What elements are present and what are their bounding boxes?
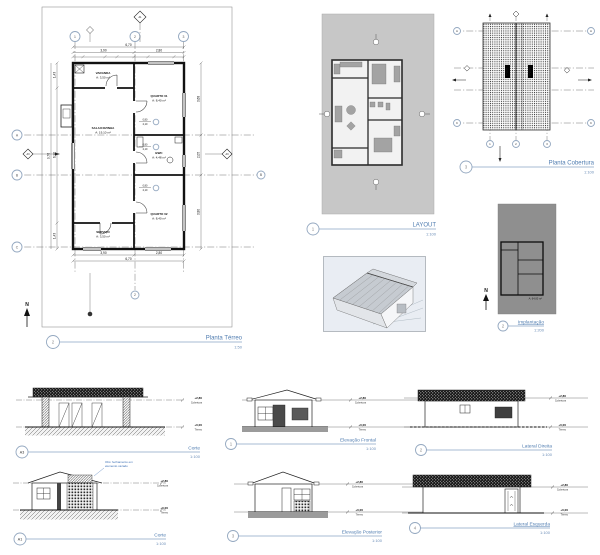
svg-text:SALA/COZINHA: SALA/COZINHA <box>92 126 115 130</box>
svg-text:C: C <box>456 122 458 125</box>
room-labels: VARANDAA: 3,50 m² QUARTO 01A: 8,40 m² SA… <box>92 71 168 239</box>
fixtures <box>61 65 182 163</box>
svg-text:Térreo: Térreo <box>195 428 203 431</box>
roof <box>250 472 317 484</box>
svg-text:Térreo: Térreo <box>359 428 367 431</box>
view-lateral-esquerda: +2,80 Cobertura +0,00 Térreo 4 Lateral E… <box>402 458 600 546</box>
svg-text:+2,80: +2,80 <box>194 396 202 400</box>
svg-text:Lateral Direita: Lateral Direita <box>522 444 552 450</box>
dimensions: 6,70 3,90 2,80 3,90 2,80 6,70 1,43 6,90 … <box>47 43 203 263</box>
svg-text:Cobertura: Cobertura <box>352 485 364 488</box>
svg-text:+2,80: +2,80 <box>558 394 566 398</box>
view-corte-a1: Obs: fechamento em elemento vazado +2,80… <box>8 455 220 550</box>
door <box>282 488 291 512</box>
svg-text:1: 1 <box>74 35 76 39</box>
svg-text:1,43: 1,43 <box>53 233 57 239</box>
svg-text:1:100: 1:100 <box>426 232 437 237</box>
section-drawing <box>20 472 118 520</box>
level-marker-lower: +0,00 Térreo <box>549 423 567 431</box>
view-planta-cobertura: i=10% i=10% 1 2 3 A C A C 3 Planta Cober… <box>450 8 598 176</box>
svg-text:A3: A3 <box>20 451 24 455</box>
view-implantacao: A: 64,00 m² N 2 Implantação 1:200 <box>478 198 600 333</box>
window <box>37 488 50 499</box>
svg-text:Implantação: Implantação <box>518 320 544 326</box>
room-label: QUARTO 01A: 8,40 m² <box>150 94 167 103</box>
svg-text:N: N <box>484 288 488 294</box>
svg-text:A: 4,48 m²: A: 4,48 m² <box>152 156 166 160</box>
view-3d-perspective <box>323 256 426 332</box>
roof-slab <box>33 388 143 397</box>
svg-text:Térreo: Térreo <box>356 513 364 516</box>
north-arrow-icon: N <box>483 288 489 310</box>
svg-text:+0,00: +0,00 <box>194 423 202 427</box>
view-title: 1 LAYOUT 1:100 <box>307 223 437 237</box>
view-title: 1 Elevação Frontal 1:100 <box>226 438 377 452</box>
svg-text:+0,00: +0,00 <box>160 506 168 510</box>
walls <box>71 61 186 251</box>
svg-text:2,10: 2,10 <box>143 123 148 126</box>
svg-text:2,05: 2,05 <box>197 152 201 158</box>
svg-text:Cobertura: Cobertura <box>557 488 569 491</box>
svg-text:A: 3,50 m²: A: 3,50 m² <box>96 76 110 80</box>
svg-text:1:100: 1:100 <box>156 541 167 546</box>
door <box>505 489 518 513</box>
svg-text:BWC: BWC <box>155 151 163 155</box>
view-lateral-direita: +2,80 Cobertura +0,00 Térreo 2 Lateral D… <box>402 380 600 460</box>
cut-wall-right <box>123 397 130 427</box>
grid-bubbles: 1 2 3 A B C B 2 <box>12 32 265 300</box>
view-layout: 1 LAYOUT 1:100 <box>300 8 450 238</box>
svg-text:QUARTO 01: QUARTO 01 <box>150 94 167 98</box>
svg-text:+2,80: +2,80 <box>355 480 363 484</box>
svg-text:QUARTO 02: QUARTO 02 <box>150 212 167 216</box>
svg-text:3: 3 <box>183 35 185 39</box>
ground-hatch <box>20 511 118 520</box>
svg-text:1:100: 1:100 <box>584 170 595 175</box>
svg-text:Cobertura: Cobertura <box>355 401 367 404</box>
svg-text:Elevação Frontal: Elevação Frontal <box>340 438 376 444</box>
svg-text:i=10%: i=10% <box>505 67 509 75</box>
section-marker-right: A3 <box>205 149 232 159</box>
svg-text:N: N <box>25 302 29 308</box>
level-marker-lower: +0,00 Térreo <box>346 508 364 516</box>
svg-text:0,80: 0,80 <box>143 119 148 122</box>
door <box>273 405 285 427</box>
level-marker-lower: +0,00 Térreo <box>349 423 367 431</box>
svg-text:+0,00: +0,00 <box>558 423 566 427</box>
gable-vent <box>68 475 92 483</box>
window <box>397 304 406 313</box>
level-marker-upper: +2,80 Cobertura <box>549 394 567 402</box>
furnished-plan <box>332 60 402 165</box>
svg-text:Térreo: Térreo <box>161 511 169 514</box>
section-drawing <box>25 388 165 436</box>
cobogo-wall <box>67 483 93 510</box>
svg-text:0,80: 0,80 <box>143 144 148 147</box>
elevation-marker-icon <box>87 27 94 34</box>
svg-text:+0,00: +0,00 <box>358 423 366 427</box>
level-marker-upper: +2,80 Cobertura <box>346 480 364 488</box>
view-title: A1 Corte 1:100 <box>14 533 167 547</box>
drawing-sheet: { "colors": { "title_text": "#4f7cb0", "… <box>0 0 600 555</box>
svg-text:3,68: 3,68 <box>197 96 201 102</box>
svg-text:1:200: 1:200 <box>534 328 545 333</box>
svg-text:0,80: 0,80 <box>143 185 148 188</box>
view-title: 3 Elevação Posterior 1:100 <box>228 530 383 544</box>
svg-text:3,90: 3,90 <box>100 251 106 255</box>
svg-text:A: 19,10 m²: A: 19,10 m² <box>95 131 111 135</box>
svg-text:2: 2 <box>134 293 136 297</box>
svg-text:Planta Térreo: Planta Térreo <box>206 336 243 342</box>
room-label: VARANDAA: 3,50 m² <box>96 71 112 80</box>
elevation-drawing <box>242 390 328 432</box>
svg-text:1:100: 1:100 <box>542 452 553 457</box>
view-title: 2 Planta Térreo 1:50 <box>47 336 243 350</box>
svg-text:LAYOUT: LAYOUT <box>412 223 436 229</box>
view-title: 3 Planta Cobertura 1:100 <box>460 161 595 175</box>
level-marker-lower: +0,00 Térreo <box>181 423 203 431</box>
cut-wall-left <box>42 397 49 427</box>
svg-text:Elevação Posterior: Elevação Posterior <box>342 530 383 536</box>
site-background <box>498 204 556 314</box>
lot-boundary <box>42 7 232 327</box>
svg-text:9,76: 9,76 <box>47 153 51 159</box>
svg-text:A1: A1 <box>18 538 22 542</box>
svg-text:C: C <box>590 122 592 125</box>
svg-text:1,43: 1,43 <box>53 72 57 78</box>
section-tail-marker <box>88 273 93 316</box>
svg-text:+0,00: +0,00 <box>355 508 363 512</box>
ground-band <box>248 512 328 518</box>
elevation-drawing <box>410 390 547 427</box>
level-marker-upper: +2,80 Cobertura <box>181 396 203 404</box>
svg-text:A: 3,50 m²: A: 3,50 m² <box>96 235 110 239</box>
level-marker-lower: +0,00 Térreo <box>160 506 169 514</box>
doors <box>100 75 147 234</box>
window <box>460 405 470 413</box>
svg-text:1:100: 1:100 <box>372 538 383 543</box>
svg-text:2,10: 2,10 <box>143 148 148 151</box>
view-title: 2 Implantação 1:200 <box>498 320 545 333</box>
svg-text:6,90: 6,90 <box>53 152 57 158</box>
laundry-tank <box>61 105 72 127</box>
room-label: QUARTO 02A: 8,40 m² <box>150 212 167 221</box>
cut-post <box>57 483 61 510</box>
svg-text:VARANDA: VARANDA <box>96 71 112 75</box>
room-label: SALA/COZINHAA: 19,10 m² <box>92 126 115 135</box>
svg-text:2,80: 2,80 <box>156 251 162 255</box>
elevation-drawing <box>408 475 544 513</box>
svg-text:+2,80: +2,80 <box>560 483 568 487</box>
svg-text:1:100: 1:100 <box>540 530 551 535</box>
view-corte-a3: +2,80 Cobertura +0,00 Térreo A3 Corte 1:… <box>8 380 220 462</box>
cobogo-panel <box>294 501 310 512</box>
level-marker-upper: +2,80 Cobertura <box>551 483 569 491</box>
window <box>258 407 273 420</box>
svg-text:i=10%: i=10% <box>528 67 532 75</box>
svg-text:Térreo: Térreo <box>561 513 569 516</box>
room-label: SERVIÇOA: 3,50 m² <box>96 230 110 239</box>
svg-text:A: 8,40 m²: A: 8,40 m² <box>152 217 166 221</box>
svg-text:Térreo: Térreo <box>559 428 567 431</box>
svg-text:Cobertura: Cobertura <box>157 484 169 487</box>
svg-text:Cobertura: Cobertura <box>191 401 203 404</box>
roof-band <box>418 390 525 401</box>
svg-text:1:100: 1:100 <box>366 446 377 451</box>
site-area-label: A: 64,00 m² <box>529 297 543 301</box>
view-title: 2 Lateral Direita 1:100 <box>416 444 553 458</box>
svg-text:+0,00: +0,00 <box>560 508 568 512</box>
ground-hatch <box>25 428 165 436</box>
svg-text:elemento vazado: elemento vazado <box>105 464 128 468</box>
doors <box>59 403 102 427</box>
svg-text:Corte: Corte <box>154 533 166 539</box>
svg-text:SERVIÇO: SERVIÇO <box>96 230 110 234</box>
level-lines <box>16 400 184 427</box>
elevation-drawing <box>248 472 328 518</box>
svg-text:+2,80: +2,80 <box>358 396 366 400</box>
level-marker-upper: +2,80 Cobertura <box>157 479 169 487</box>
window <box>294 489 310 500</box>
svg-text:6,70: 6,70 <box>125 43 131 47</box>
annotation-note: Obs: fechamento em elemento vazado <box>94 460 133 476</box>
svg-text:Corte: Corte <box>188 446 200 452</box>
window-dark <box>292 408 308 420</box>
ground-band <box>242 427 328 432</box>
svg-text:6,70: 6,70 <box>125 257 131 261</box>
svg-text:Lateral Esquerda: Lateral Esquerda <box>513 522 550 528</box>
svg-text:A: 8,40 m²: A: 8,40 m² <box>152 99 166 103</box>
svg-text:+2,80: +2,80 <box>160 479 168 483</box>
sink <box>167 157 173 163</box>
level-marker-upper: +2,80 Cobertura <box>349 396 367 404</box>
svg-text:2: 2 <box>134 35 136 39</box>
room-label: BWCA: 4,48 m² <box>152 151 166 160</box>
svg-text:Planta Cobertura: Planta Cobertura <box>549 161 595 167</box>
level-marker-lower: +0,00 Térreo <box>551 508 569 516</box>
roof <box>249 390 319 400</box>
view-planta-terreo: 1 2 3 A B C B 2 A1 A3 A3 <box>5 5 270 355</box>
svg-text:1:50: 1:50 <box>234 345 243 350</box>
svg-text:3,80: 3,80 <box>197 209 201 215</box>
toilet <box>175 137 182 143</box>
svg-text:2,80: 2,80 <box>156 49 162 53</box>
window-dark <box>495 407 512 418</box>
svg-text:3,90: 3,90 <box>100 49 106 53</box>
north-arrow-icon: N <box>24 302 30 327</box>
view-title: 4 Lateral Esquerda 1:100 <box>410 522 551 536</box>
roof-band <box>413 475 531 487</box>
svg-text:2,10: 2,10 <box>143 189 148 192</box>
svg-text:Cobertura: Cobertura <box>555 399 567 402</box>
